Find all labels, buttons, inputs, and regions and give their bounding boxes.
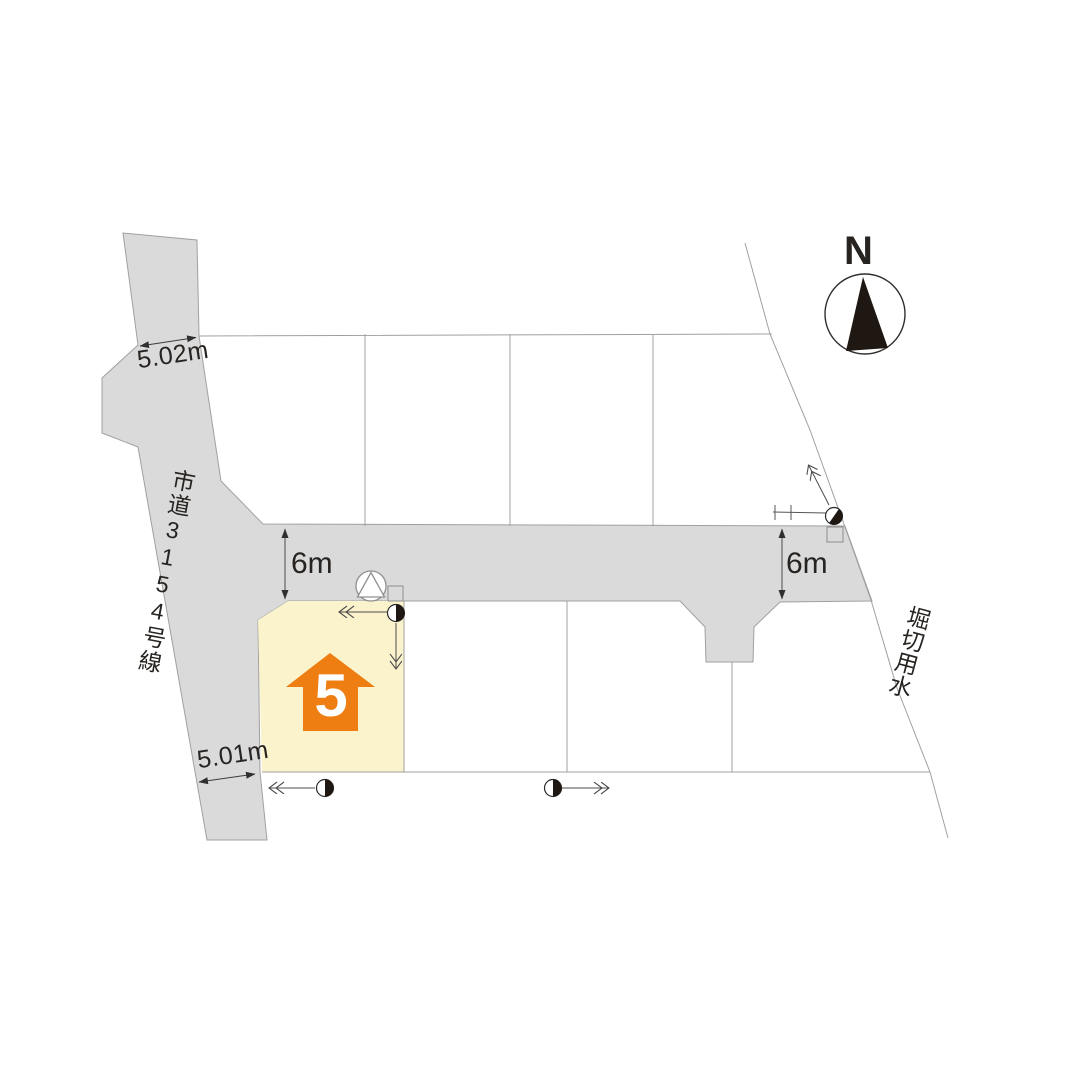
- guy-wire-line: [773, 505, 826, 520]
- road-width-east-label: 6m: [786, 549, 828, 579]
- triangle-in-circle-icon: [356, 571, 386, 601]
- arrow-upleft-from-pole-4: [809, 466, 829, 505]
- road-width-west-label: 6m: [291, 549, 333, 579]
- utility-pole-icon-1: [388, 605, 405, 622]
- utility-pole-icon-4: [826, 508, 846, 528]
- north-arrow-icon: [825, 274, 905, 354]
- utility-pole-icon-3: [545, 780, 562, 797]
- north-label: N: [844, 231, 873, 271]
- catch-basin-icon-west: [388, 586, 403, 601]
- lot-number-label: 5: [301, 666, 361, 726]
- site-plan: 5.02m 5.01m 6m 6m N 市道3154号線 堀切用水 5: [0, 0, 1080, 1080]
- catch-basin-icon-east: [827, 527, 843, 542]
- utility-pole-icon-2: [317, 780, 334, 797]
